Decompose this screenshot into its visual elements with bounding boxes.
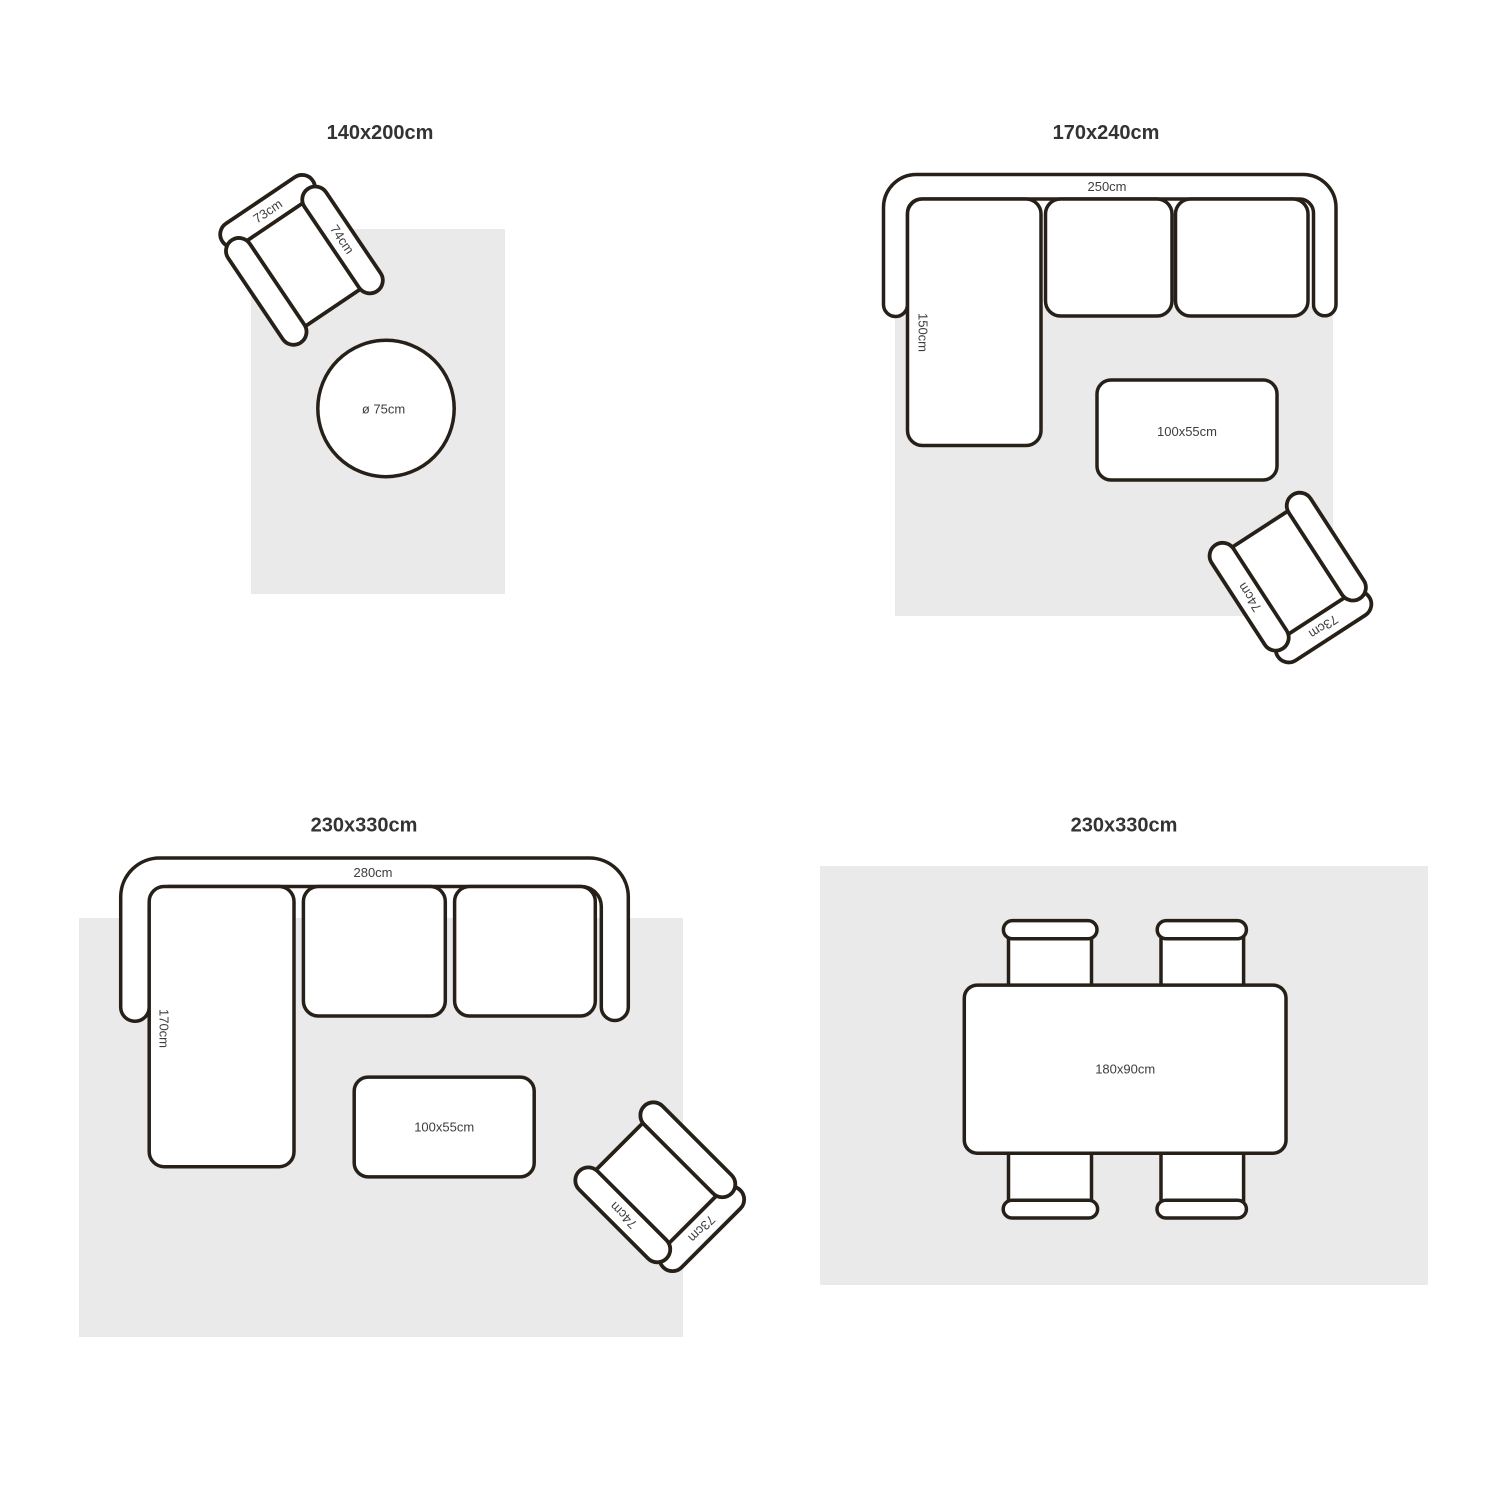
svg-text:230x330cm: 230x330cm <box>311 815 418 837</box>
svg-text:250cm: 250cm <box>1087 179 1126 194</box>
svg-text:ø 75cm: ø 75cm <box>362 402 405 417</box>
svg-text:170x240cm: 170x240cm <box>1053 122 1160 144</box>
svg-text:170cm: 170cm <box>156 1009 171 1048</box>
svg-text:150cm: 150cm <box>916 313 931 352</box>
svg-text:100x55cm: 100x55cm <box>414 1120 474 1135</box>
svg-text:140x200cm: 140x200cm <box>327 122 434 144</box>
svg-text:180x90cm: 180x90cm <box>1095 1062 1155 1077</box>
svg-text:230x330cm: 230x330cm <box>1071 815 1178 837</box>
svg-text:100x55cm: 100x55cm <box>1157 424 1217 439</box>
svg-text:280cm: 280cm <box>353 865 392 880</box>
